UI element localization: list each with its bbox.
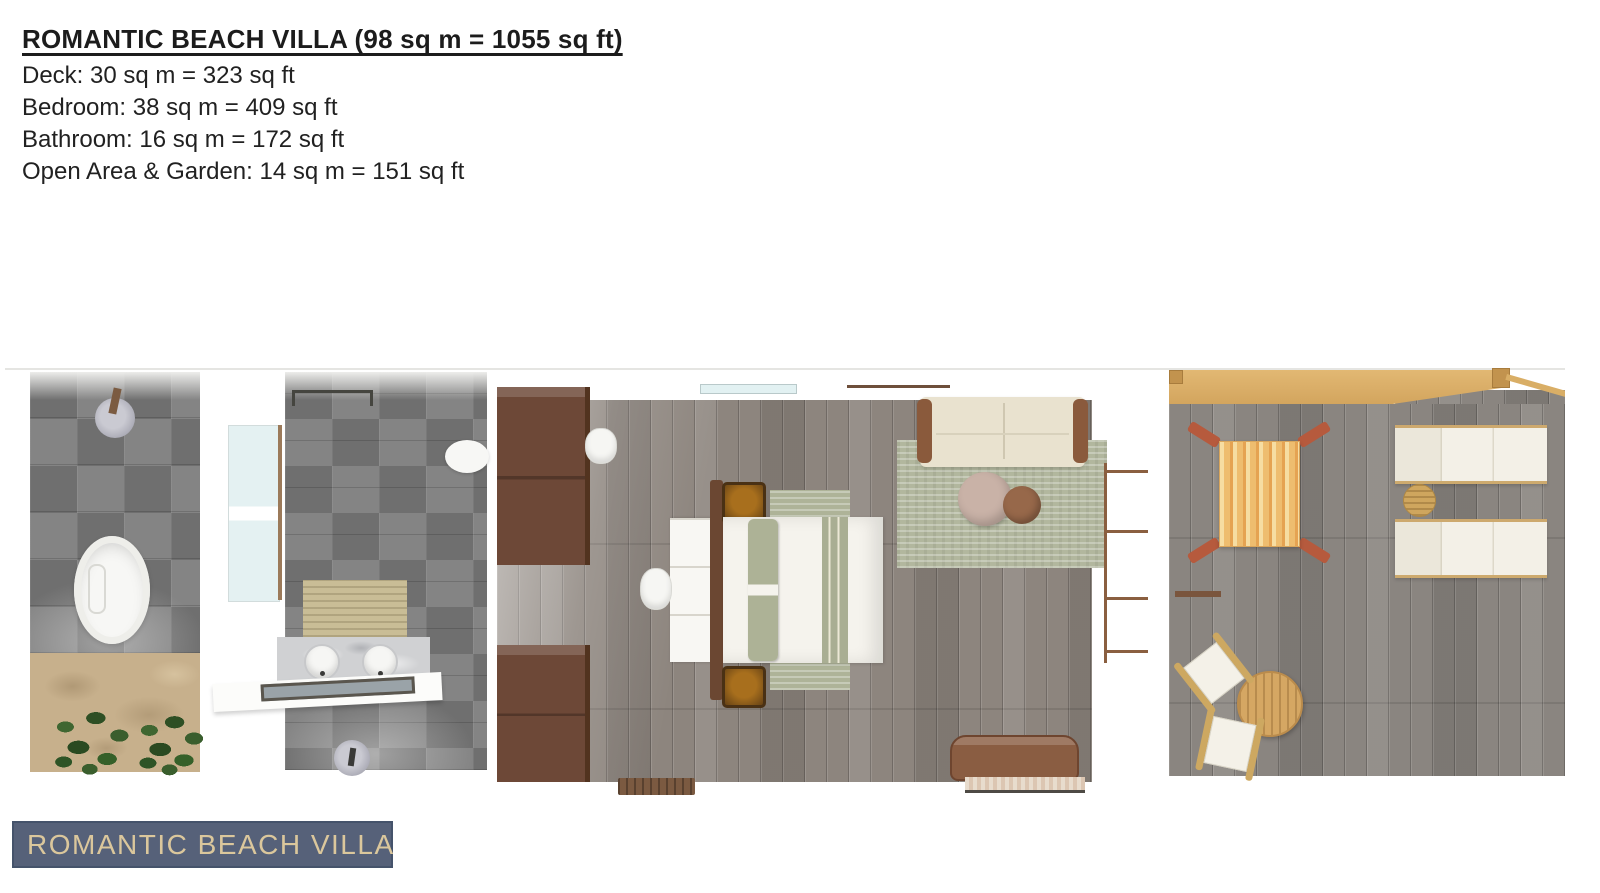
deck-chair-2-seat (1203, 716, 1256, 772)
detail-bedroom: Bedroom: 38 sq m = 409 sq ft (22, 92, 464, 124)
pouf-small (1003, 486, 1041, 524)
bathroom-oval-rug (445, 440, 489, 473)
bed-stool-bottom (722, 666, 766, 708)
hammock-strap-bottom-right (1297, 537, 1332, 564)
hammock (1185, 423, 1333, 563)
bedside-rug-top (770, 490, 850, 517)
sofa-seat-line (936, 433, 1069, 435)
hammock-canvas (1219, 441, 1300, 547)
bed-runner (822, 517, 848, 663)
bathtub-inner-detail (88, 564, 106, 614)
page: ROMANTIC BEACH VILLA (98 sq m = 1055 sq … (0, 0, 1600, 893)
detail-bathroom: Bathroom: 16 sq m = 172 sq ft (22, 124, 464, 156)
bathroom-tile-floor (285, 372, 487, 770)
bathroom-shower-handle (348, 748, 356, 767)
floor-plan (5, 368, 1565, 795)
sofa (920, 397, 1085, 467)
bathroom-shower-head (334, 740, 370, 776)
hammock-strap-top-left (1187, 421, 1222, 448)
bedroom-wardrobe-top (497, 387, 590, 565)
shelf-upright (1104, 463, 1107, 663)
bed (723, 517, 883, 663)
villa-name-badge: ROMANTIC BEACH VILLA (12, 821, 393, 868)
bathroom-shelf-tray (261, 676, 416, 701)
outdoor-shower-head (95, 398, 135, 438)
sun-lounger-bottom (1395, 519, 1547, 578)
bedroom-window-sill (847, 385, 950, 388)
hammock-strap-bottom-left (1187, 537, 1222, 564)
pergola-post-left (1169, 370, 1183, 384)
bathroom-sink-left (304, 644, 340, 680)
plan-top-wall-line (5, 368, 1565, 370)
shelf-board-2 (1104, 530, 1148, 533)
hammock-strap-top-right (1297, 421, 1332, 448)
area-details: Deck: 30 sq m = 323 sq ft Bedroom: 38 sq… (22, 60, 464, 188)
bathroom-glass-door (228, 425, 280, 602)
shelf-board-3 (1104, 597, 1148, 600)
bedroom-bench (950, 735, 1079, 781)
bedroom-white-stool (585, 428, 617, 464)
deck-wall-ledge (1175, 591, 1221, 597)
bedroom-wardrobe-bottom (497, 645, 590, 782)
sun-lounger-top (1395, 425, 1547, 484)
bench-mat (965, 777, 1085, 793)
bedside-rug-bottom (770, 663, 850, 690)
bathroom-bath-mat (303, 580, 407, 637)
bedroom-wall-shelf-unit (1099, 463, 1149, 663)
garden-plant-left (48, 705, 135, 778)
bathroom-towel-rail (292, 390, 373, 406)
detail-open-area-garden: Open Area & Garden: 14 sq m = 151 sq ft (22, 156, 464, 188)
bedroom-window (700, 384, 797, 394)
bed-pillows (748, 519, 778, 661)
page-title: ROMANTIC BEACH VILLA (98 sq m = 1055 sq … (22, 24, 623, 55)
shelf-board-1 (1104, 470, 1148, 473)
bed-headboard-platform (670, 518, 713, 662)
sofa-cushion-divider (1003, 403, 1005, 459)
detail-deck: Deck: 30 sq m = 323 sq ft (22, 60, 464, 92)
bed-side-chair (640, 568, 672, 610)
bathroom-door-frame (278, 425, 282, 600)
outdoor-bathtub (74, 536, 150, 644)
shelf-board-4 (1104, 650, 1148, 653)
garden-plant-right (135, 710, 207, 778)
bedroom-doormat (618, 778, 695, 795)
lounger-side-table (1403, 484, 1436, 517)
